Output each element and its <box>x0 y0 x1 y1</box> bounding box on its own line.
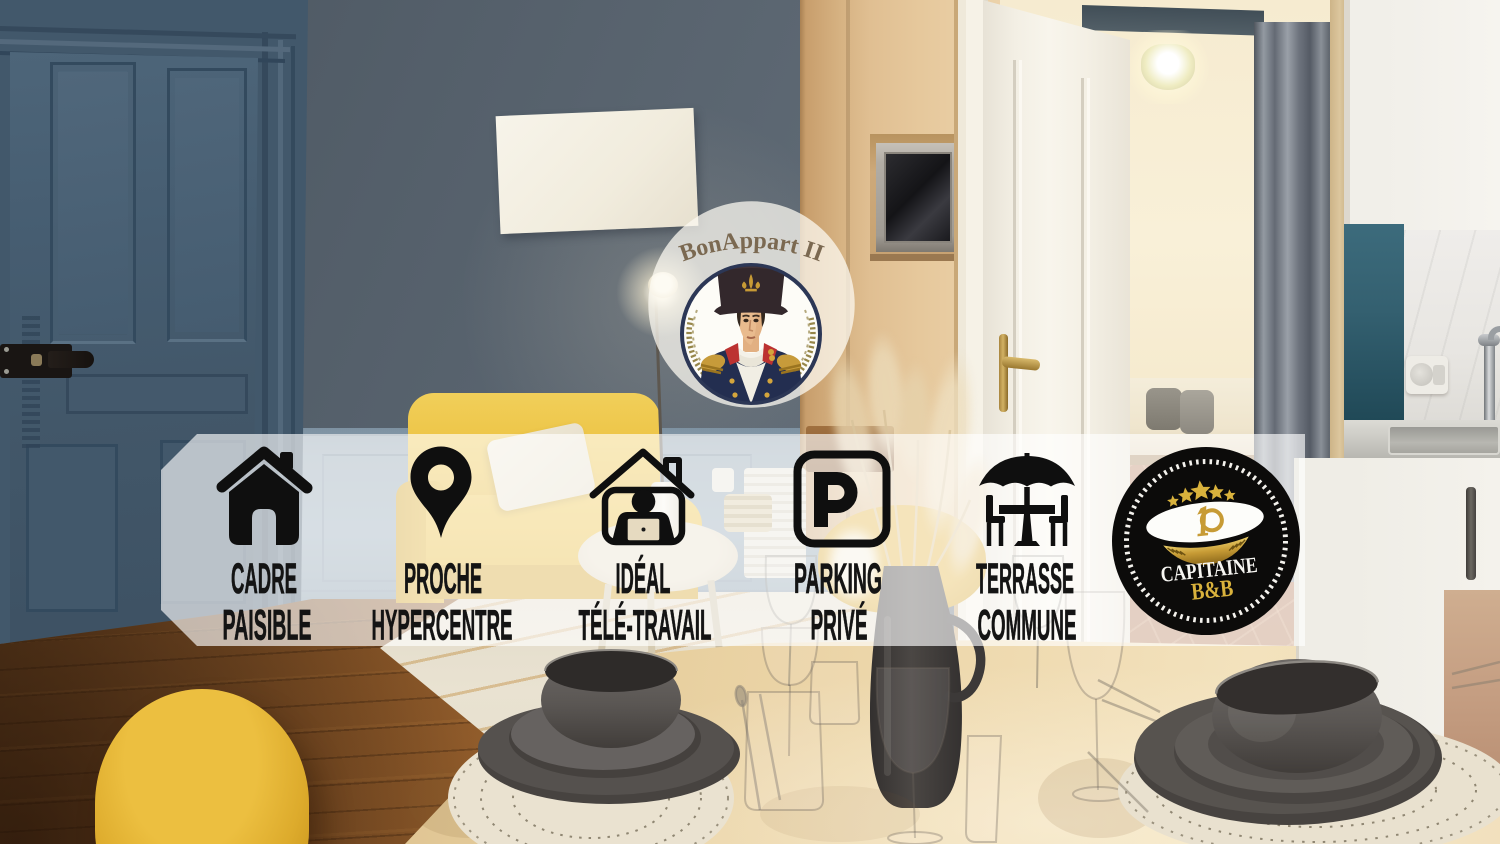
svg-text:COMMUNE: COMMUNE <box>978 602 1077 650</box>
svg-text:TERRASSE: TERRASSE <box>976 555 1074 603</box>
svg-text:PROCHE: PROCHE <box>404 555 482 603</box>
svg-text:PRIVÉ: PRIVÉ <box>811 602 868 650</box>
svg-text:IDÉAL: IDÉAL <box>616 555 671 603</box>
svg-text:PARKING: PARKING <box>794 555 882 603</box>
svg-text:CADRE: CADRE <box>231 555 297 603</box>
svg-text:HYPERCENTRE: HYPERCENTRE <box>372 602 513 650</box>
svg-text:PAISIBLE: PAISIBLE <box>223 602 312 650</box>
svg-text:B&B: B&B <box>1190 575 1234 605</box>
svg-text:TÉLÉ-TRAVAIL: TÉLÉ-TRAVAIL <box>579 602 712 650</box>
